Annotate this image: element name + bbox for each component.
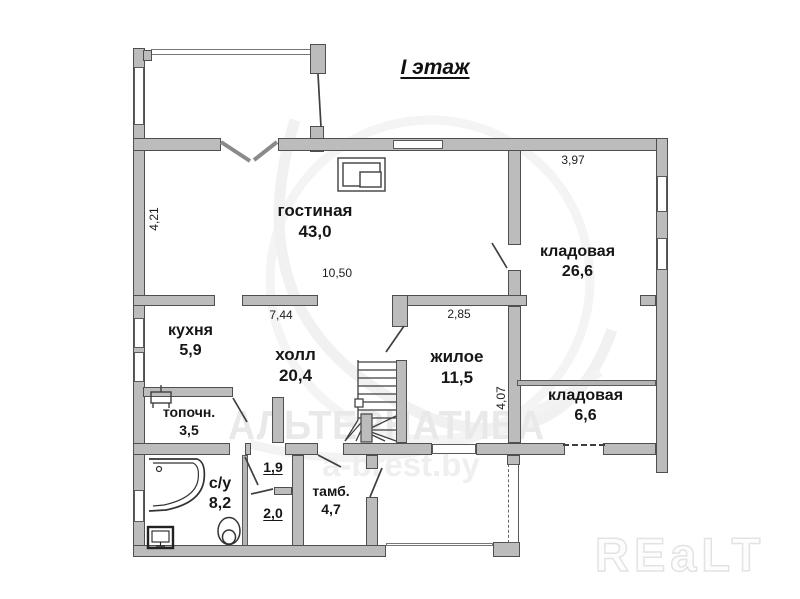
floor-plan: АЛЬТЕРНАТИВА a-brest.by REaLT I этаж — [0, 0, 800, 599]
room-label-kitchen: кухня 5,9 — [153, 321, 228, 361]
door-leaf-closets — [251, 489, 273, 494]
door-leaf-boilerroom — [233, 398, 247, 422]
room-name: кладовая — [528, 386, 643, 406]
room-label-boilerroom: топочн. 3,5 — [148, 404, 230, 439]
room-name: с/у — [186, 474, 254, 494]
door-leaf-vestibule-out — [370, 468, 382, 497]
bay-entry-leaves — [221, 142, 277, 161]
dim-living-width: 10,50 — [312, 266, 362, 280]
room-area: 8,2 — [186, 494, 254, 514]
room-area: 43,0 — [250, 221, 380, 242]
sink-icon — [148, 527, 173, 548]
room-name: жилое — [412, 346, 502, 367]
room-name: гостиная — [250, 200, 380, 221]
room-label-storage-small: кладовая 6,6 — [528, 386, 643, 426]
staircase — [345, 360, 396, 442]
room-area: 26,6 — [520, 262, 635, 282]
room-name: топочн. — [148, 404, 230, 422]
room-area: 5,9 — [153, 341, 228, 361]
room-label-vestibule: тамб. 4,7 — [298, 483, 364, 518]
dim-storage-width: 3,97 — [548, 153, 598, 167]
dim-hall-width: 7,44 — [258, 308, 304, 322]
room-area: 4,7 — [298, 501, 364, 519]
room-name: кладовая — [520, 242, 635, 262]
room-area: 3,5 — [148, 422, 230, 440]
room-name: холл — [253, 344, 338, 365]
plan-linework — [0, 0, 800, 599]
dim-living-height: 4,21 — [147, 197, 161, 241]
room-label-storage-big: кладовая 26,6 — [520, 242, 635, 282]
room-name: тамб. — [298, 483, 364, 501]
dim-right-section-height: 4,07 — [494, 376, 508, 420]
tv-icon — [338, 158, 385, 191]
room-label-closet-b: 2,0 — [253, 505, 293, 523]
room-label-hall: холл 20,4 — [253, 344, 338, 387]
room-area: 1,9 — [263, 459, 282, 475]
door-leaf-vestibule-in — [318, 455, 341, 467]
room-area: 11,5 — [412, 367, 502, 388]
room-label-living: гостиная 43,0 — [250, 200, 380, 243]
room-area: 20,4 — [253, 365, 338, 386]
dim-bedroom-width: 2,85 — [436, 307, 482, 321]
page-title: I этаж — [350, 56, 520, 80]
room-area: 2,0 — [263, 505, 282, 521]
door-leaf-bedroom — [386, 326, 404, 352]
room-area: 6,6 — [528, 406, 643, 426]
toilet-icon — [218, 518, 240, 545]
room-label-bedroom: жилое 11,5 — [412, 346, 502, 389]
door-leaf-storage-big — [492, 243, 507, 268]
room-label-bathroom: с/у 8,2 — [186, 474, 254, 514]
terrace-diagonal — [318, 74, 321, 127]
room-name: кухня — [153, 321, 228, 341]
room-label-closet-a: 1,9 — [253, 459, 293, 477]
